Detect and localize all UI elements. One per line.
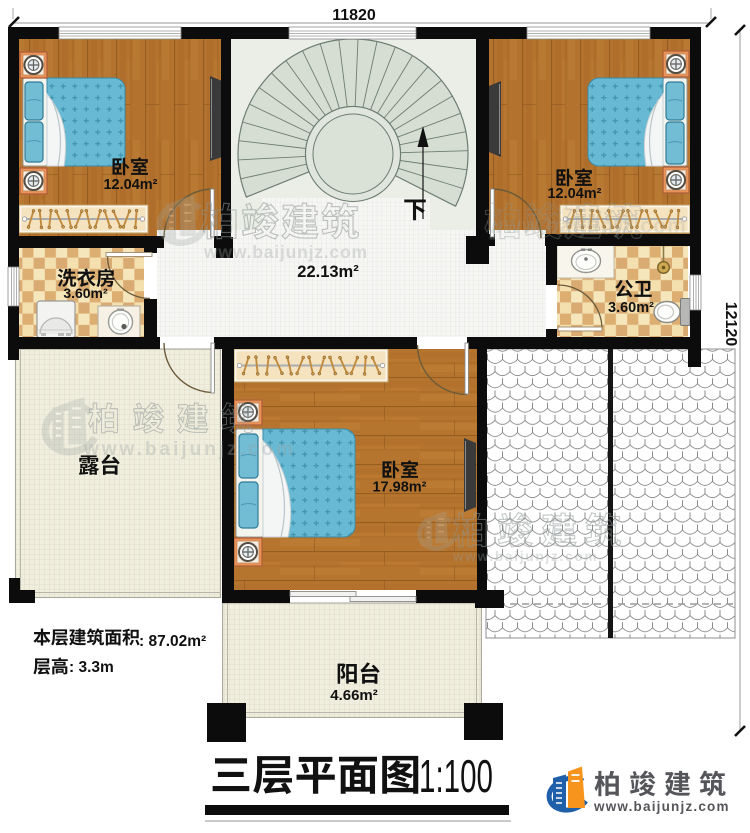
svg-text:: 3.3m: : 3.3m bbox=[69, 659, 114, 676]
svg-text:www.baijunjz.com: www.baijunjz.com bbox=[203, 242, 368, 262]
svg-text:12120: 12120 bbox=[722, 302, 739, 347]
svg-text:22.13m²: 22.13m² bbox=[297, 263, 359, 281]
svg-text:www.baijunjz.com: www.baijunjz.com bbox=[83, 439, 296, 460]
svg-text:17.98m²: 17.98m² bbox=[372, 480, 426, 496]
svg-text:4.66m²: 4.66m² bbox=[330, 687, 378, 704]
svg-text:3.60m²: 3.60m² bbox=[608, 300, 654, 316]
svg-text:12.04m²: 12.04m² bbox=[103, 177, 157, 193]
svg-text:11820: 11820 bbox=[332, 7, 376, 24]
svg-text:3.60m²: 3.60m² bbox=[63, 285, 108, 301]
svg-text:: 87.02m²: : 87.02m² bbox=[139, 633, 206, 650]
svg-text:www.baijunjz.com: www.baijunjz.com bbox=[593, 799, 730, 814]
svg-text:www.baijunjz.com: www.baijunjz.com bbox=[452, 549, 598, 564]
svg-text:12.04m²: 12.04m² bbox=[547, 186, 601, 202]
svg-text:www.baijunjz.com: www.baijunjz.com bbox=[486, 213, 687, 238]
svg-text:1:100: 1:100 bbox=[419, 750, 493, 802]
